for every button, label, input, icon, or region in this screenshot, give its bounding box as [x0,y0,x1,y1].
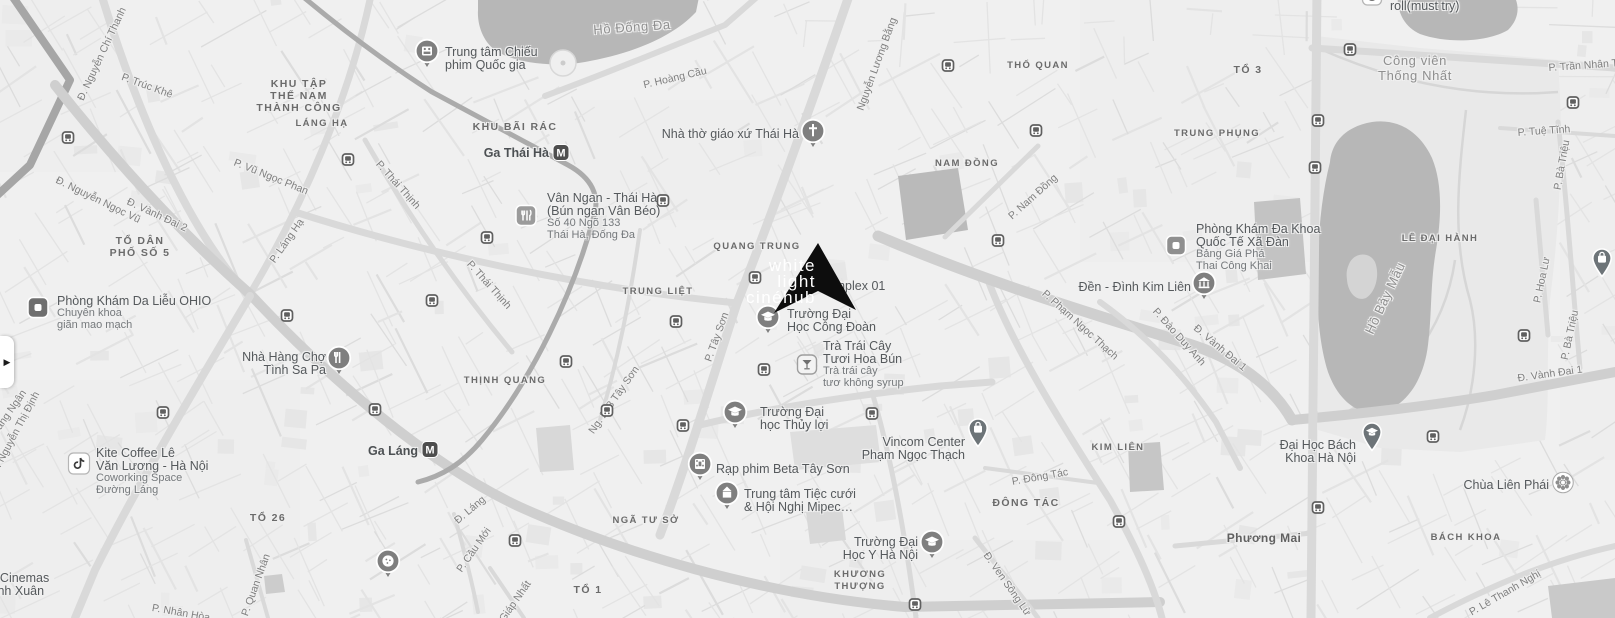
marker-label-line3: cinéhub [746,290,816,306]
chevron-right-icon: ▶ [4,357,11,368]
side-panel-expand-button[interactable]: ▶ [0,336,14,388]
map-canvas[interactable]: KHU TẬP THỂ NAM THÀNH CÔNGLÁNG HẠKHU BÃI… [0,0,1615,618]
base-map-svg [0,0,1615,618]
marker-label[interactable]: white light cinéhub [746,258,816,306]
